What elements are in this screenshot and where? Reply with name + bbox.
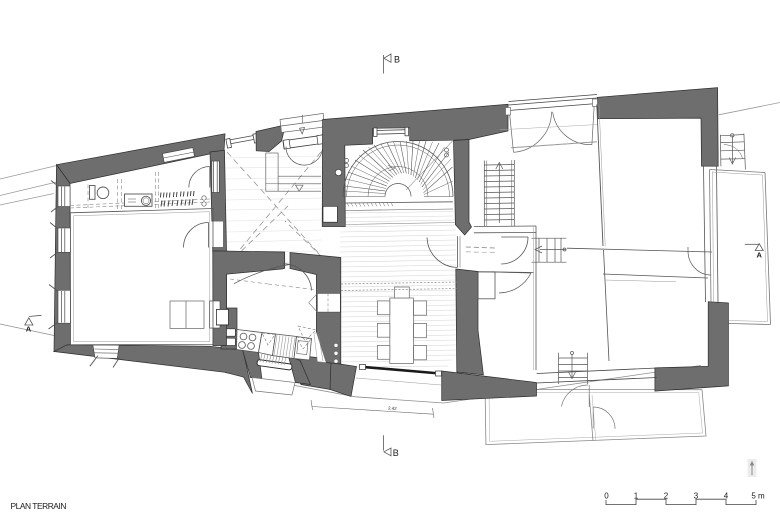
svg-text:4: 4 [724,492,729,501]
svg-text:2: 2 [664,492,669,501]
svg-text:PLAN TERRAIN: PLAN TERRAIN [11,501,67,511]
svg-text:0: 0 [604,492,609,501]
svg-text:5 m: 5 m [751,492,765,501]
svg-text:2.42: 2.42 [388,406,397,412]
svg-text:A: A [757,251,763,260]
svg-text:B: B [393,448,399,458]
svg-text:3: 3 [694,492,699,501]
svg-text:B: B [394,55,400,65]
svg-text:A: A [26,325,32,334]
svg-text:1: 1 [634,492,639,501]
